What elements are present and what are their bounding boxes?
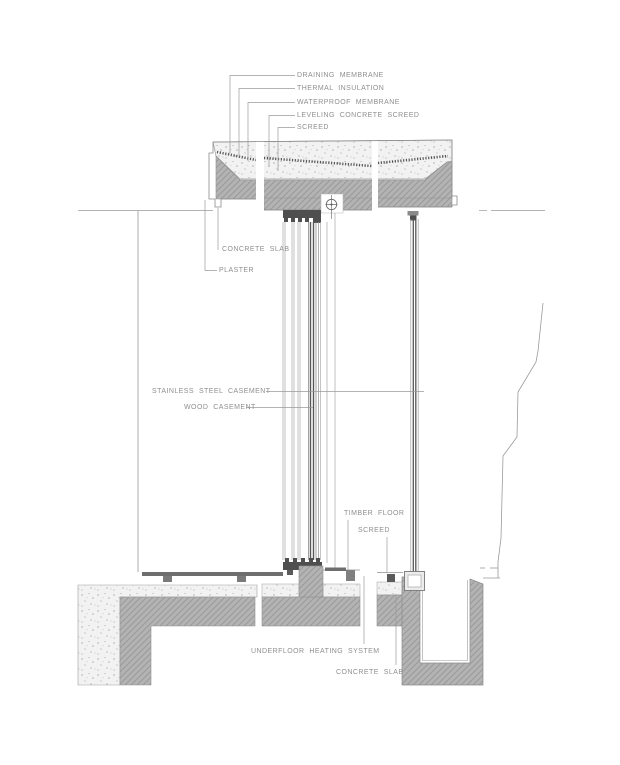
anchor-bolt-center [331,204,333,206]
label-timber-floor: TIMBER FLOOR [344,509,404,518]
label-leveling-concrete-screed: LEVELING CONCRETE SCREED [297,111,419,120]
drainage-gutter [402,572,500,686]
label-wood-casement: WOOD CASEMENT [184,403,256,412]
label-stainless-steel-casement: STAINLESS STEEL CASEMENT [152,387,271,396]
floor-stipple-centre-a [262,584,299,597]
label-screed-floor: SCREED [358,526,390,535]
timber-floor-pad-2 [237,576,246,582]
roof-slab-centre-extension [264,198,372,210]
roof-joint-gap-left [256,139,264,212]
terrain-break-line [480,303,543,578]
label-concrete-slab-roof: CONCRETE SLAB [222,245,289,254]
label-plaster: PLASTER [219,266,254,275]
floor-stipple-centre-b [323,584,360,597]
detail-drawing-canvas: DRAINING MEMBRANE THERMAL INSULATION WAT… [0,0,620,765]
floor-slab-exterior [377,595,403,626]
roof-outline-right-step [452,140,457,207]
head-profile [283,210,321,218]
timber-floor-pad-1 [163,576,172,582]
roof-slab-right-extension [378,198,452,207]
label-thermal-insulation: THERMAL INSULATION [297,84,384,93]
threshold-support [346,570,355,581]
wood-casement-section [283,213,335,575]
roof-joint-gap-right [372,139,378,211]
label-screed-roof: SCREED [297,123,329,132]
label-draining-membrane: DRAINING MEMBRANE [297,71,384,80]
threshold-fixing [387,574,395,582]
gutter-concrete-u [402,577,483,685]
wood-casement-glazing-cluster [309,222,321,560]
label-underfloor-heating: UNDERFLOOR HEATING SYSTEM [251,647,380,656]
threshold-board [325,568,346,572]
label-waterproof-membrane: WATERPROOF MEMBRANE [297,98,400,107]
floor-slab-left [120,597,255,685]
timber-floor-board [142,572,283,576]
floor-stipple-exterior [377,582,403,595]
steel-casement-sill-inner [408,575,421,587]
steel-casement-top-bracket [408,211,419,216]
label-concrete-slab-floor: CONCRETE SLAB [336,668,403,677]
window-plinth [299,566,323,597]
head-profile-teeth [284,218,321,223]
gutter-liner [423,577,468,661]
roof-screed-stipple [213,140,452,179]
floor-slab-centre [262,597,360,626]
